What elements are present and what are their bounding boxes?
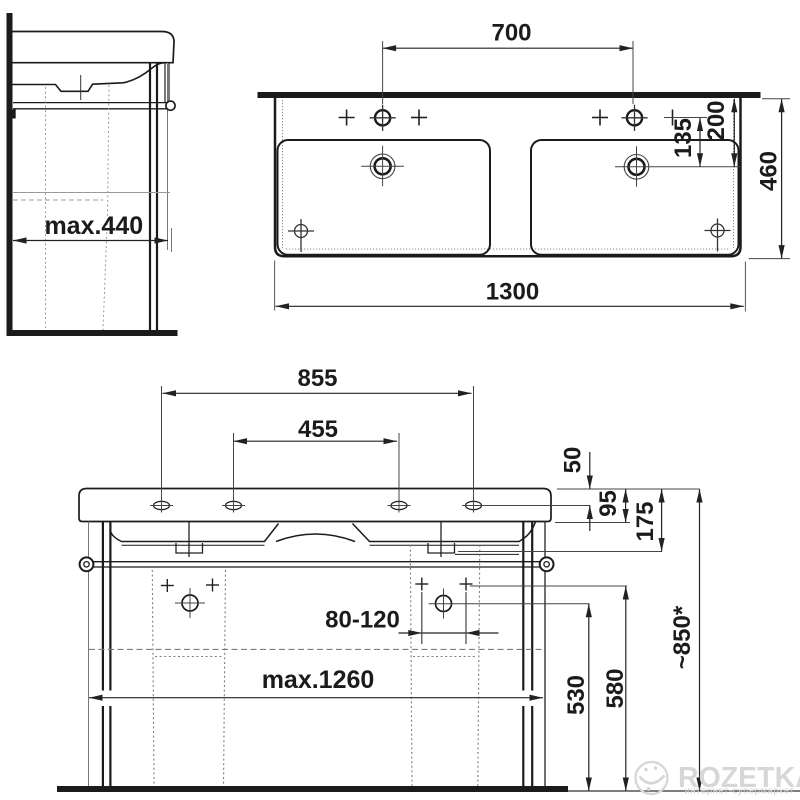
svg-text:460: 460 (756, 151, 783, 191)
svg-text:175: 175 (632, 501, 659, 541)
svg-text:~850*: ~850* (669, 605, 696, 669)
svg-text:700: 700 (491, 20, 531, 47)
svg-text:max.440: max.440 (44, 212, 143, 240)
svg-text:135: 135 (670, 118, 697, 158)
svg-text:80-120: 80-120 (325, 607, 400, 634)
svg-text:max.1260: max.1260 (262, 666, 375, 694)
svg-text:интернет-супермаркет: интернет-супермаркет (685, 786, 795, 797)
svg-text:455: 455 (298, 416, 338, 443)
svg-text:200: 200 (703, 100, 730, 140)
svg-text:1300: 1300 (486, 279, 539, 306)
svg-text:530: 530 (563, 675, 590, 715)
svg-text:855: 855 (297, 365, 337, 392)
svg-text:50: 50 (560, 447, 587, 474)
svg-text:580: 580 (602, 668, 629, 708)
svg-text:95: 95 (595, 490, 622, 517)
